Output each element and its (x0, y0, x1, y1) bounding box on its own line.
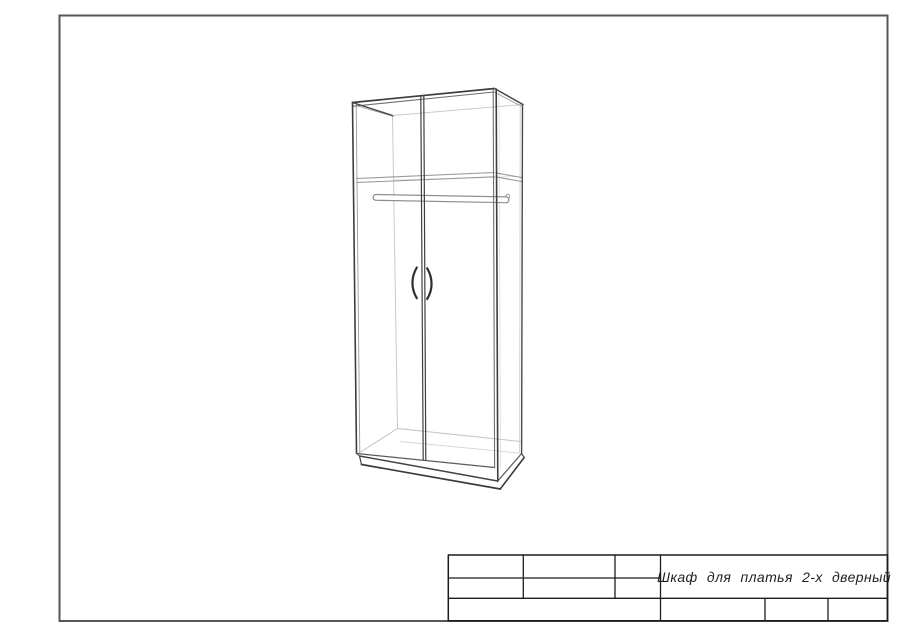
drawing-canvas (0, 0, 900, 636)
frame-border (60, 16, 888, 622)
wardrobe-wireframe-front (353, 89, 525, 490)
wardrobe-hanging-rod (376, 194, 509, 200)
drawing-sheet: Шкаф для платья 2-х дверный (0, 0, 900, 636)
drawing-title: Шкаф для платья 2-х дверный (661, 555, 887, 598)
